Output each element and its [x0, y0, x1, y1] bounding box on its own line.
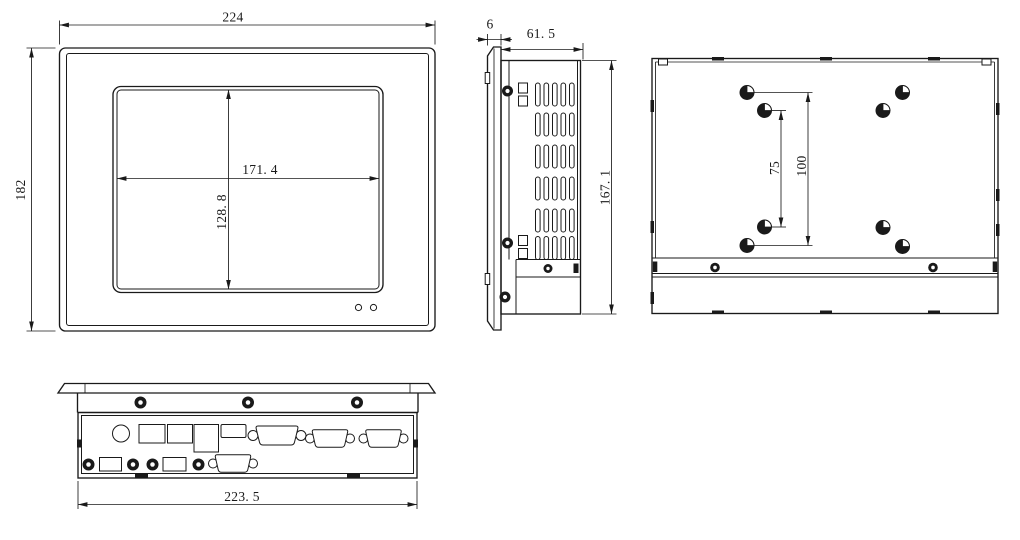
edge-tab — [996, 189, 1000, 201]
dim-vesa-75: 75 — [767, 111, 786, 228]
side-screw-bottom — [500, 292, 511, 303]
dim-label-side-height: 167. 1 — [598, 170, 613, 206]
vga-port — [248, 426, 306, 445]
edge-tab — [996, 224, 1000, 236]
edge-tab — [77, 440, 82, 448]
side-screw-top — [502, 86, 513, 97]
io-port-slot-1 — [100, 458, 122, 472]
lan-port — [194, 425, 219, 453]
edge-tab — [712, 57, 724, 61]
rear-strip-end-cap-left — [653, 262, 658, 273]
com-port-3 — [209, 455, 258, 472]
vesa-mount-hole — [758, 220, 772, 234]
edge-tab — [135, 474, 148, 479]
rear-corner-hook-right — [982, 59, 991, 65]
side-strip-screw — [544, 264, 553, 273]
side-cutout-square — [519, 249, 528, 259]
mount-screw — [351, 397, 363, 409]
dim-label-side-depth: 61. 5 — [527, 26, 556, 41]
led-indicator-2 — [370, 304, 376, 310]
panel-screw — [147, 459, 159, 471]
com-port-1 — [306, 430, 355, 447]
vesa-mount-hole — [740, 86, 754, 100]
vesa-mount-hole — [740, 239, 754, 253]
panel-screw — [193, 459, 205, 471]
dim-label-bezel-thickness: 6 — [486, 17, 493, 32]
dim-display-height: 128. 8 — [214, 90, 229, 290]
edge-tab — [414, 440, 419, 448]
vent-slot-row — [536, 113, 575, 136]
dim-label-bottom-width: 223. 5 — [224, 489, 260, 504]
dim-label-front-width: 224 — [222, 10, 243, 25]
vesa-mount-hole — [876, 221, 890, 235]
bezel-clip-notch-bottom — [485, 274, 490, 285]
edge-tab — [928, 57, 940, 61]
mount-screw — [135, 397, 147, 409]
dim-label-display-height: 128. 8 — [214, 194, 229, 230]
edge-tab — [651, 221, 655, 233]
com-port-2 — [359, 430, 408, 447]
bezel-clip-notch-top — [485, 73, 490, 84]
front-inner-frame — [67, 54, 429, 326]
dim-front-height: 182 — [13, 48, 56, 331]
dim-label-display-width: 171. 4 — [242, 162, 278, 177]
edge-tab — [820, 311, 832, 315]
edge-tab — [712, 311, 724, 315]
panel-screw — [83, 459, 95, 471]
side-view: 6 61. 5 167. 1 — [477, 17, 617, 331]
side-cutout-square — [519, 96, 528, 106]
vesa-mount-hole — [876, 104, 890, 118]
led-indicator-1 — [355, 304, 361, 310]
edge-tab — [651, 100, 655, 112]
dim-side-depth: 61. 5 — [501, 26, 583, 60]
edge-tab — [347, 474, 360, 479]
hdmi-port — [221, 425, 246, 438]
vent-slot-row — [536, 177, 575, 200]
vesa-mount-hole — [896, 240, 910, 254]
edge-tab — [996, 103, 1000, 115]
vesa-mount-hole — [758, 104, 772, 118]
side-chassis-body — [501, 61, 581, 315]
display-active-area — [117, 90, 379, 289]
dim-label-vesa-75: 75 — [767, 161, 782, 175]
side-screw-mid — [502, 238, 513, 249]
edge-tab — [820, 57, 832, 61]
io-port-slot-2 — [163, 458, 186, 472]
vent-slot-row — [536, 145, 575, 168]
display-bezel-opening — [113, 87, 383, 293]
side-cutout-square — [519, 83, 528, 93]
dim-label-vesa-100: 100 — [794, 155, 809, 176]
power-jack — [113, 425, 130, 442]
rear-corner-hook-left — [659, 59, 668, 65]
vent-slot-row — [536, 209, 575, 232]
side-strip-end-tab — [574, 264, 579, 274]
rear-view: 100 75 — [651, 57, 1000, 314]
dim-bottom-width: 223. 5 — [78, 481, 417, 509]
rear-strip-screw-right — [928, 263, 938, 273]
vent-slot-row — [536, 237, 575, 260]
dim-front-width: 224 — [60, 10, 436, 45]
edge-tab — [928, 311, 940, 315]
rear-strip-end-cap-right — [993, 262, 998, 273]
rear-strip-screw-left — [710, 263, 720, 273]
edge-tab — [651, 292, 655, 304]
rear-panel-outline — [652, 59, 998, 314]
dim-side-height: 167. 1 — [582, 61, 617, 315]
technical-drawing-canvas: 171. 4 128. 8 224 182 — [0, 0, 1020, 540]
dim-display-width: 171. 4 — [117, 162, 379, 179]
panel-screw — [127, 459, 139, 471]
dim-label-front-height: 182 — [13, 179, 28, 200]
drawing-page: 171. 4 128. 8 224 182 — [0, 0, 1020, 540]
front-view: 171. 4 128. 8 224 182 — [13, 10, 435, 332]
vesa-mount-hole — [896, 86, 910, 100]
mount-screw — [242, 397, 254, 409]
bottom-front-bezel-edge — [58, 384, 435, 394]
side-cutout-square — [519, 236, 528, 246]
io-port-square-2 — [168, 425, 193, 444]
io-port-square-1 — [139, 425, 165, 444]
vent-slot-row — [536, 83, 575, 106]
bottom-view: 223. 5 — [58, 384, 435, 510]
dim-bezel-thickness: 6 — [477, 17, 513, 46]
